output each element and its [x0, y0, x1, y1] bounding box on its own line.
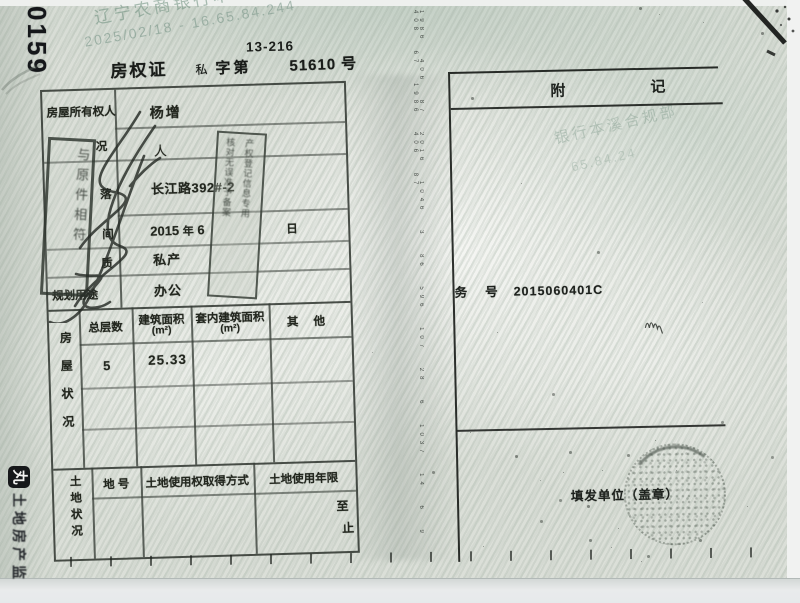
appendix-title-fu: 附 — [550, 80, 565, 101]
binding-micro-marks: 1986 406 87 2016 1046 3 86 596 107 28 6 … — [412, 10, 424, 558]
term-to-char: 止 — [342, 519, 355, 536]
appendix-header-line — [451, 102, 723, 110]
official-seal-stamp — [623, 442, 727, 546]
area-value: 25.33 — [148, 351, 203, 368]
header-line — [80, 336, 352, 346]
case-number-row: 务号2015060401C — [454, 279, 603, 301]
nian-char: 年 — [183, 226, 194, 238]
floors-value: 5 — [80, 357, 133, 374]
pencil-scribble — [0, 50, 45, 95]
scan-bottom-edge — [0, 578, 800, 603]
row-line — [81, 380, 353, 390]
appendix-title-ji: 记 — [650, 75, 665, 96]
case-prefix: 务 — [454, 286, 467, 300]
house-section-label: 房屋状况 — [57, 331, 78, 461]
issuer-logo-icon: 丸 — [8, 466, 30, 488]
handwritten-signature — [18, 98, 183, 323]
certificate-hao: 号 — [341, 52, 357, 74]
certificate-type: 私 — [195, 61, 208, 78]
case-hao: 号 — [485, 285, 498, 299]
certificate-zidi: 字第 — [215, 56, 252, 78]
certificate-number: 51610 — [289, 56, 336, 75]
reg-stamp-line2: 核对无误准予备案 — [221, 137, 236, 217]
section-line — [53, 460, 355, 471]
seal-noise-specks — [0, 0, 1, 1]
scan-right-edge — [787, 0, 800, 603]
scanned-certificate: 0159 丸 土地房产监 1986 406 87 2016 1046 3 86 … — [0, 0, 800, 603]
reg-stamp-line1: 产权登记信息专用 — [240, 138, 255, 218]
term-from-char: 至 — [336, 497, 349, 514]
land-method-header: 土地使用权取得方式 — [140, 472, 253, 491]
land-no-header: 地 号 — [91, 475, 140, 492]
other-header: 其 他 — [269, 312, 349, 330]
registration-stamp-text: 产权登记信息专用 核对无误准予备案 — [216, 137, 259, 219]
appendix-bottom-line — [457, 424, 725, 432]
ri-char: 日 — [286, 220, 298, 236]
reg-month: 6 — [197, 222, 205, 237]
edge-issuer-block: 丸 土地房产监 — [8, 466, 30, 583]
land-term-header: 土地使用年限 — [253, 469, 353, 488]
page-fold-shadow — [350, 75, 455, 560]
inner-area-unit: (m²) — [191, 321, 269, 335]
certificate-name: 房权证 — [110, 55, 168, 82]
land-section-label: 土地状况 — [66, 475, 84, 553]
case-number: 2015060401C — [513, 283, 603, 299]
area-unit: (m²) — [132, 324, 191, 338]
small-mark-doodle — [643, 316, 665, 334]
scan-corner-artifact — [733, 0, 798, 59]
registration-stamp: 产权登记信息专用 核对无误准予备案 — [207, 131, 267, 300]
edge-issuer-label: 土地房产监 — [9, 493, 29, 583]
row-line — [82, 421, 354, 431]
appendix-box: 附 记 务号2015060401C 填发单位（盖章） — [448, 66, 725, 561]
